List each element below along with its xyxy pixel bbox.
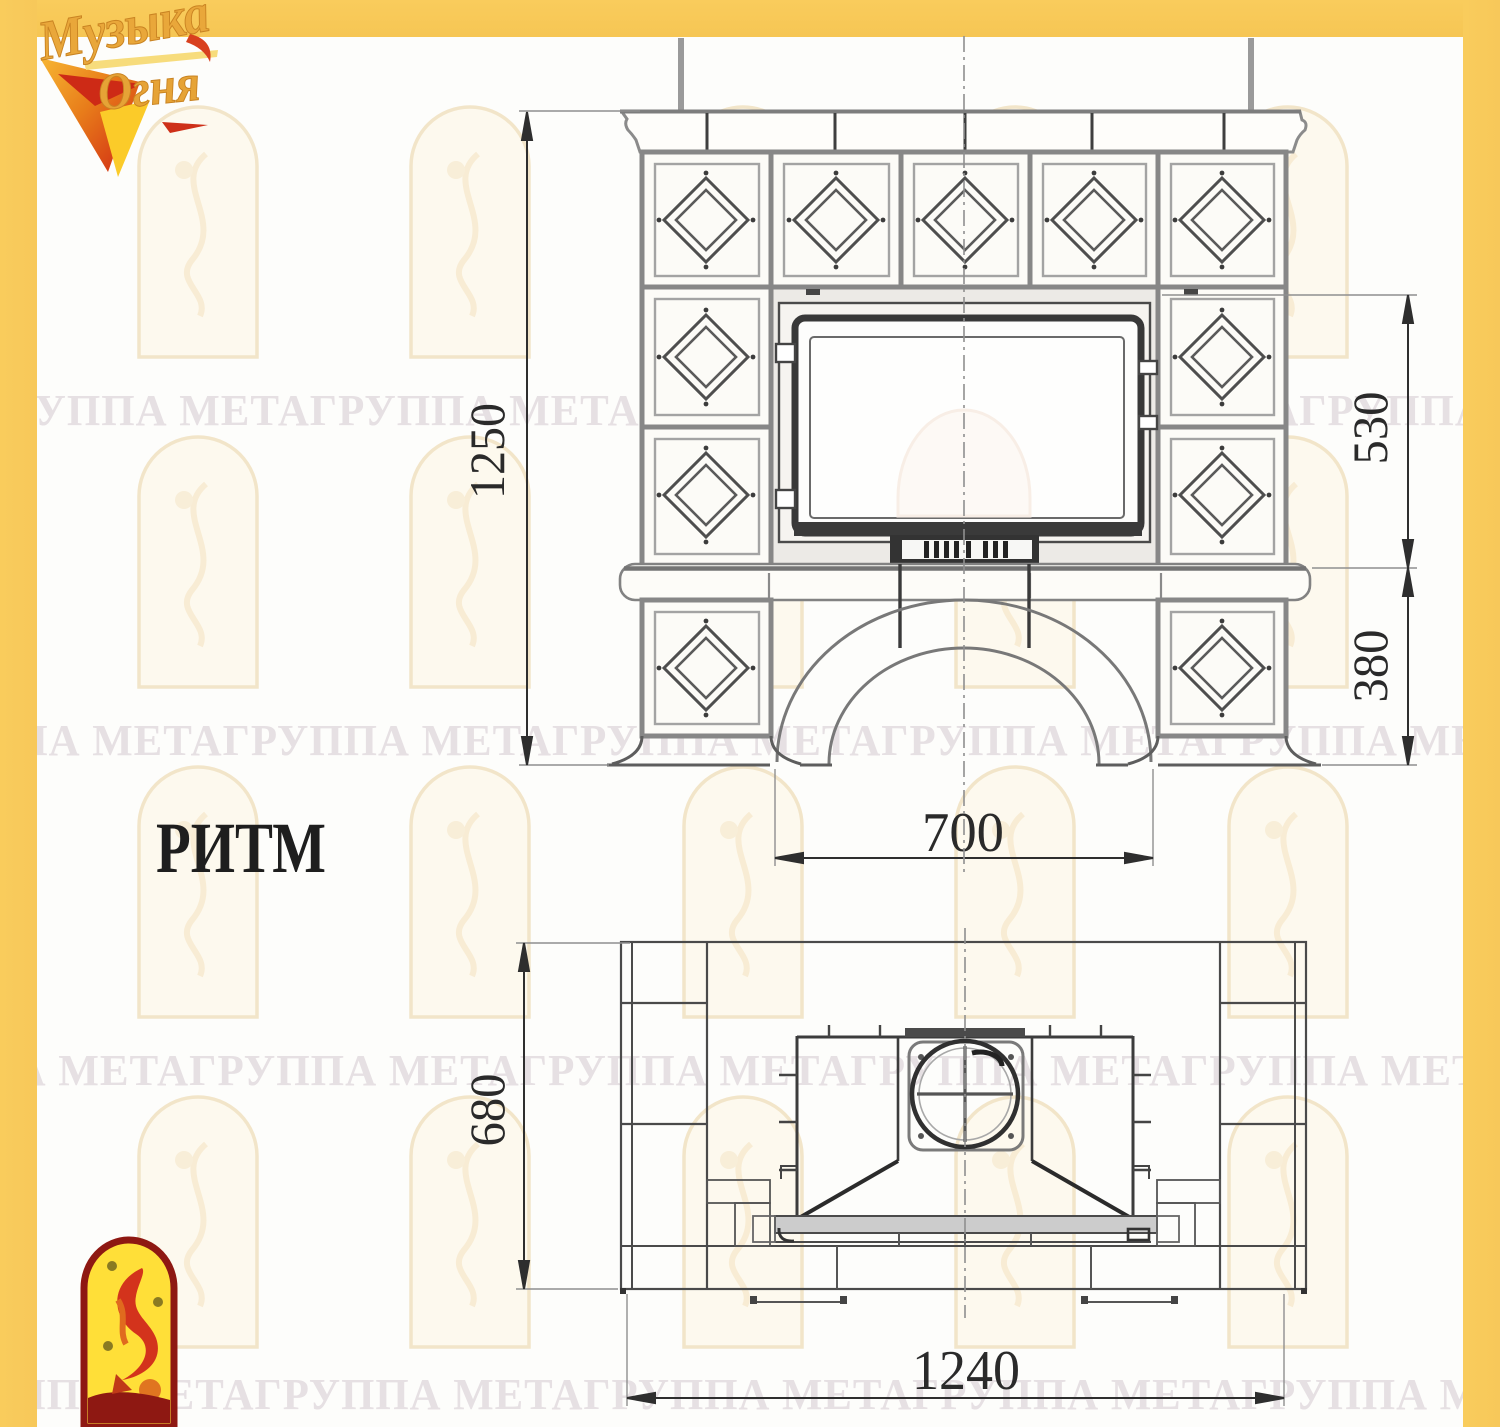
svg-text:1240: 1240 <box>912 1340 1020 1402</box>
svg-text:1250: 1250 <box>459 403 515 499</box>
svg-text:УППА МЕТАГРУППА МЕТАГРУППА МЕТ: УППА МЕТАГРУППА МЕТАГРУППА МЕТАГРУППА МЕ… <box>0 1370 1500 1419</box>
svg-text:700: 700 <box>922 802 1004 864</box>
svg-text:ПА МЕТАГРУППА МЕТАГРУППА МЕТАГ: ПА МЕТАГРУППА МЕТАГРУППА МЕТАГРУППА МЕТА… <box>0 1046 1500 1095</box>
svg-text:Огня: Огня <box>95 55 202 122</box>
svg-text:530: 530 <box>1342 392 1398 465</box>
svg-text:РИТМ: РИТМ <box>156 808 326 888</box>
svg-text:680: 680 <box>459 1074 515 1147</box>
svg-text:380: 380 <box>1342 630 1398 703</box>
